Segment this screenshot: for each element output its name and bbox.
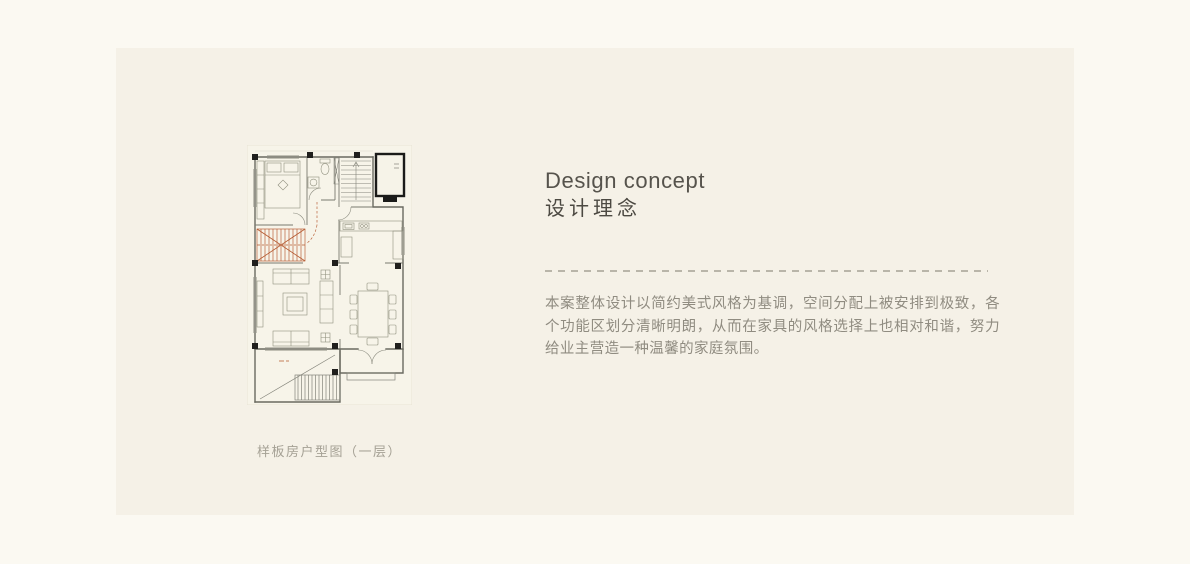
section-body-text: 本案整体设计以简约美式风格为基调，空间分配上被安排到极致，各个功能区划分清晰明朗… <box>545 293 1000 361</box>
content-panel: 样板房户型图（一层） Design concept 设计理念 本案整体设计以简约… <box>116 48 1074 515</box>
section-title-cn: 设计理念 <box>545 196 1000 222</box>
section-content: Design concept 设计理念 本案整体设计以简约美式风格为基调，空间分… <box>545 168 1000 375</box>
figure-caption: 样板房户型图（一层） <box>232 441 427 460</box>
section-title-en: Design concept <box>545 168 1000 194</box>
floor-plan-image <box>247 145 412 405</box>
dashed-divider <box>545 270 988 272</box>
floor-plan-figure <box>247 145 412 405</box>
